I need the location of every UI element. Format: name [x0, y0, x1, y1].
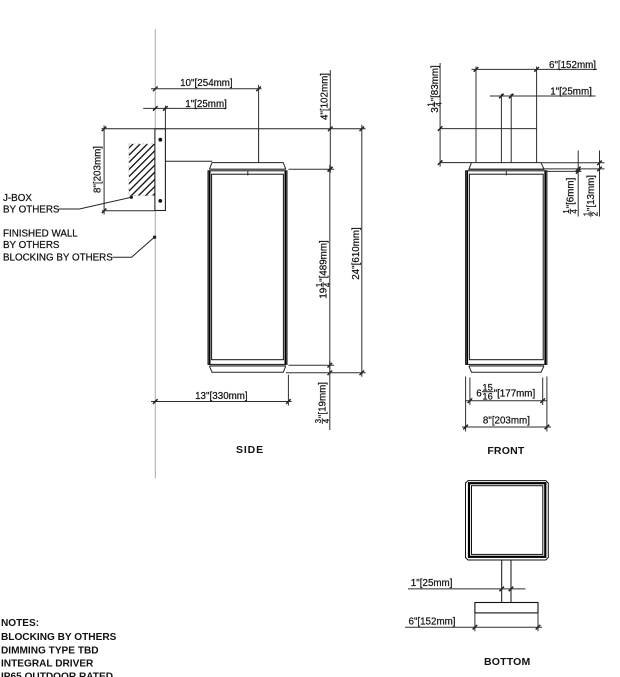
svg-text:]: ] — [230, 78, 233, 89]
svg-text:1"[: 1"[ — [550, 87, 562, 98]
svg-text:330mm: 330mm — [212, 391, 245, 402]
svg-text:2: 2 — [591, 212, 600, 216]
svg-text:177mm: 177mm — [500, 388, 533, 399]
svg-text:BY OTHERS: BY OTHERS — [3, 204, 60, 215]
svg-text:IP65 OUTDOOR RATED: IP65 OUTDOOR RATED — [1, 671, 113, 677]
svg-text:25mm: 25mm — [562, 87, 589, 98]
svg-text:610mm: 610mm — [351, 230, 362, 263]
svg-text:DIMMING TYPE TBD: DIMMING TYPE TBD — [1, 645, 99, 656]
svg-text:]: ] — [430, 65, 441, 68]
svg-text:]: ] — [586, 175, 597, 178]
svg-text:152mm: 152mm — [561, 60, 594, 71]
svg-text:]: ] — [318, 382, 329, 385]
svg-text:FRONT: FRONT — [487, 445, 525, 457]
svg-text:4"[: 4"[ — [320, 108, 331, 120]
svg-text:]: ] — [320, 73, 331, 76]
svg-text:1"[: 1"[ — [411, 578, 423, 589]
svg-text:6"[: 6"[ — [549, 60, 561, 71]
svg-text:24"[: 24"[ — [351, 262, 362, 279]
svg-text:10"[: 10"[ — [180, 78, 197, 89]
svg-text:]: ] — [593, 60, 596, 71]
svg-text:254mm: 254mm — [197, 78, 230, 89]
svg-text:25mm: 25mm — [423, 578, 450, 589]
svg-text:INTEGRAL DRIVER: INTEGRAL DRIVER — [1, 658, 94, 669]
svg-text:]: ] — [566, 177, 577, 180]
svg-text:102mm: 102mm — [320, 76, 331, 109]
svg-text:]: ] — [589, 87, 592, 98]
svg-text:1"[: 1"[ — [185, 99, 197, 110]
svg-text:]: ] — [533, 388, 536, 399]
svg-text:19mm: 19mm — [318, 385, 329, 412]
svg-text:]: ] — [224, 99, 227, 110]
svg-text:BLOCKING BY OTHERS: BLOCKING BY OTHERS — [3, 253, 113, 264]
svg-text:6: 6 — [476, 388, 482, 399]
svg-text:]: ] — [93, 146, 104, 149]
svg-text:]: ] — [450, 578, 453, 589]
svg-text:19: 19 — [318, 288, 329, 299]
svg-text:8"[: 8"[ — [483, 415, 495, 426]
svg-text:BOTTOM: BOTTOM — [484, 656, 531, 668]
svg-text:8"[: 8"[ — [93, 181, 104, 193]
svg-text:]: ] — [318, 240, 329, 243]
svg-text:NOTES:: NOTES: — [1, 618, 39, 629]
svg-text:]: ] — [351, 227, 362, 230]
svg-text:13"[: 13"[ — [195, 391, 212, 402]
svg-text:6"[: 6"[ — [409, 617, 421, 628]
svg-text:]: ] — [527, 415, 530, 426]
svg-text:BY OTHERS: BY OTHERS — [3, 240, 60, 251]
svg-text:13mm: 13mm — [586, 178, 597, 205]
svg-text:152mm: 152mm — [420, 617, 453, 628]
svg-text:16: 16 — [482, 392, 492, 402]
svg-text:J-BOX: J-BOX — [3, 193, 32, 204]
svg-text:3: 3 — [430, 107, 441, 113]
svg-text:BLOCKING BY OTHERS: BLOCKING BY OTHERS — [1, 632, 117, 643]
svg-text:6mm: 6mm — [566, 180, 577, 202]
svg-text:]: ] — [453, 617, 456, 628]
svg-text:SIDE: SIDE — [236, 444, 264, 456]
svg-text:203mm: 203mm — [93, 149, 104, 182]
svg-text:203mm: 203mm — [495, 415, 528, 426]
svg-text:489mm: 489mm — [318, 243, 329, 276]
svg-text:83mm: 83mm — [430, 68, 441, 95]
svg-text:FINISHED WALL: FINISHED WALL — [3, 228, 78, 239]
svg-text:]: ] — [245, 391, 248, 402]
svg-text:25mm: 25mm — [197, 99, 224, 110]
